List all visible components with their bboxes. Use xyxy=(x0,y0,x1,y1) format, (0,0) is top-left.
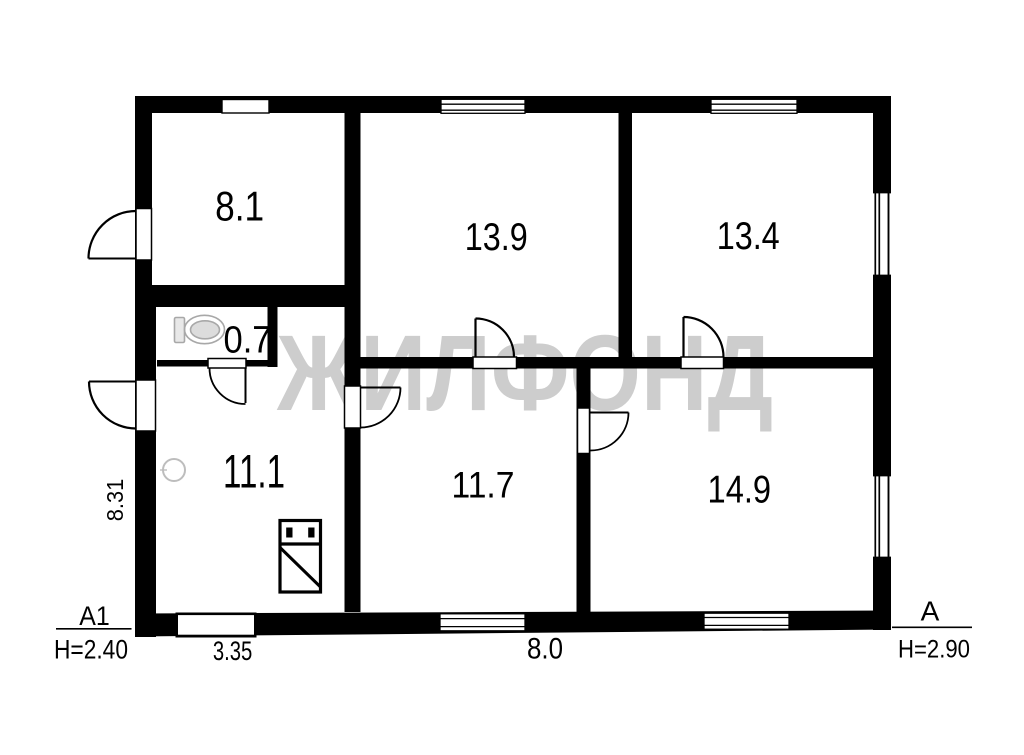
svg-text:14.9: 14.9 xyxy=(708,469,772,512)
svg-text:11.1: 11.1 xyxy=(223,445,285,498)
svg-text:8.31: 8.31 xyxy=(102,479,128,522)
svg-text:3.35: 3.35 xyxy=(213,636,253,666)
svg-text:13.9: 13.9 xyxy=(465,216,528,259)
svg-text:13.4: 13.4 xyxy=(717,215,780,258)
svg-text:А1: А1 xyxy=(79,601,110,631)
svg-text:8.1: 8.1 xyxy=(215,182,264,229)
svg-text:0.7: 0.7 xyxy=(224,320,272,362)
svg-text:H=2.90: H=2.90 xyxy=(898,635,970,663)
svg-text:11.7: 11.7 xyxy=(452,464,515,505)
svg-text:8.0: 8.0 xyxy=(527,633,563,666)
svg-text:H=2.40: H=2.40 xyxy=(54,634,128,664)
svg-text:А: А xyxy=(921,596,940,627)
